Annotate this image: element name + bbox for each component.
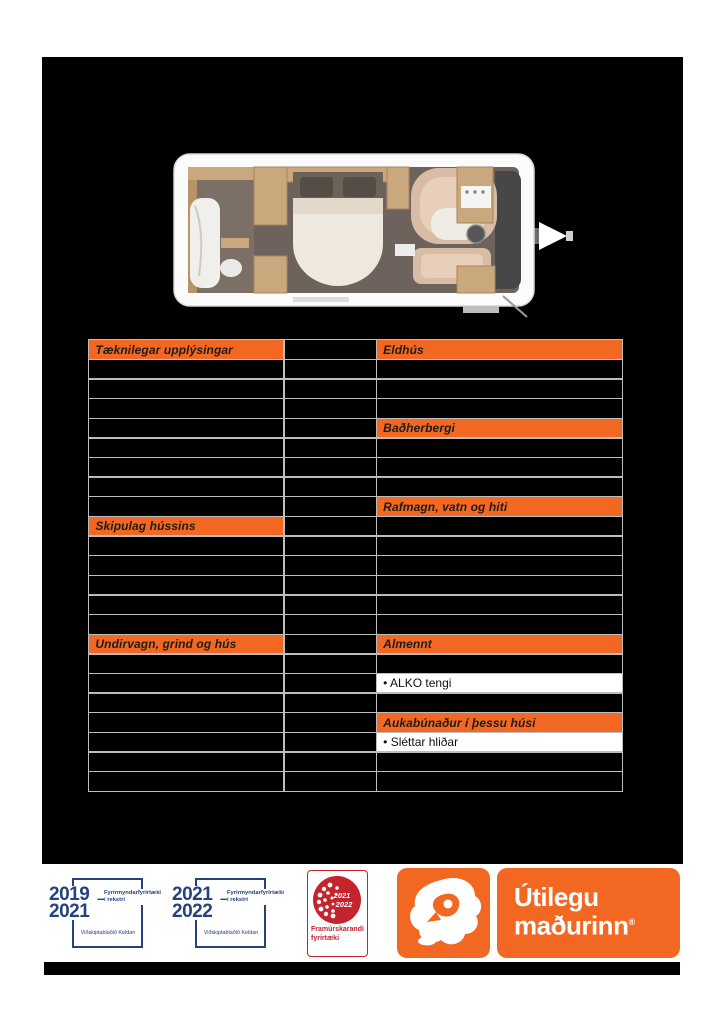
empty-cell-left: [89, 380, 283, 398]
empty-cell-mid: [285, 576, 376, 594]
empty-cell-left: [89, 615, 283, 633]
award-year-bottom: 2022: [172, 903, 212, 920]
empty-cell-left: [89, 497, 283, 515]
empty-cell-right: [377, 380, 621, 398]
feature-item-cell: • Sléttar hliðar: [377, 733, 621, 751]
empty-cell-left: [89, 478, 283, 496]
svg-text:2021: 2021: [333, 891, 351, 900]
empty-cell-mid: [285, 537, 376, 555]
framurskarandi-caption: Framúrskarandi fyrirtæki: [311, 926, 367, 943]
empty-cell-right: [377, 537, 621, 555]
empty-cell-right: [377, 596, 621, 614]
section-header-cell: Tæknilegar upplýsingar: [89, 340, 283, 358]
empty-cell-mid: [285, 478, 376, 496]
brand-mascot-logo: [397, 868, 490, 958]
award-year-bottom: 2021: [49, 903, 89, 920]
empty-cell-right: [377, 478, 621, 496]
outdoorsman-face-icon: [397, 868, 490, 958]
section-header-cell: Eldhús: [377, 340, 621, 358]
empty-cell-mid: [285, 497, 376, 515]
section-header-cell: Aukabúnaður í þessu húsi: [377, 713, 621, 731]
empty-cell-left: [89, 556, 283, 574]
section-header-cell: Skipulag hússins: [89, 517, 283, 535]
empty-cell-right: [377, 517, 621, 535]
empty-cell-mid: [285, 635, 376, 653]
empty-cell-left: [89, 360, 283, 378]
spec-table: Tæknilegar upplýsingarEldhúsBaðherbergiR…: [88, 339, 623, 792]
brand-wordmark-logo: Útilegu maðurinn®: [497, 868, 680, 958]
empty-cell-left: [89, 674, 283, 692]
empty-cell-right: [377, 615, 621, 633]
section-header-cell: Undirvagn, grind og hús: [89, 635, 283, 653]
empty-cell-left: [89, 439, 283, 457]
empty-cell-mid: [285, 439, 376, 457]
svg-text:2022: 2022: [335, 900, 354, 909]
empty-cell-mid: [285, 517, 376, 535]
framurskarandi-circle-icon: 2021 2022: [313, 876, 361, 924]
empty-cell-right: [377, 772, 621, 790]
empty-cell-mid: [285, 458, 376, 476]
empty-cell-mid: [285, 596, 376, 614]
empty-cell-left: [89, 596, 283, 614]
empty-cell-mid: [285, 556, 376, 574]
empty-cell-left: [89, 655, 283, 673]
empty-cell-right: [377, 694, 621, 712]
empty-cell-left: [89, 537, 283, 555]
empty-cell-mid: [285, 419, 376, 437]
award-subtitle: Viðskiptablaðið Keldan: [78, 929, 138, 937]
empty-cell-right: [377, 556, 621, 574]
empty-cell-right: [377, 399, 621, 417]
section-header-cell: Rafmagn, vatn og hiti: [377, 497, 621, 515]
brand-line1: Útilegu: [514, 885, 680, 910]
empty-cell-right: [377, 753, 621, 771]
empty-cell-left: [89, 576, 283, 594]
empty-cell-mid: [285, 380, 376, 398]
empty-cell-mid: [285, 399, 376, 417]
empty-cell-left: [89, 753, 283, 771]
empty-cell-mid: [285, 694, 376, 712]
empty-cell-mid: [285, 733, 376, 751]
award-years: 2019 2021: [48, 886, 90, 920]
brand-line2: maðurinn®: [514, 910, 680, 939]
empty-cell-left: [89, 713, 283, 731]
empty-cell-right: [377, 655, 621, 673]
registered-mark: ®: [628, 917, 634, 927]
empty-cell-mid: [285, 753, 376, 771]
bottom-black-bar: [44, 962, 680, 975]
empty-cell-mid: [285, 615, 376, 633]
empty-cell-mid: [285, 360, 376, 378]
empty-cell-left: [89, 694, 283, 712]
section-header-cell: Almennt: [377, 635, 621, 653]
caravan-floorplan-image: [173, 146, 577, 318]
empty-cell-left: [89, 772, 283, 790]
award-subtitle: Viðskiptablaðið Keldan: [201, 929, 261, 937]
empty-cell-left: [89, 419, 283, 437]
empty-cell-mid: [285, 772, 376, 790]
empty-cell-mid: [285, 713, 376, 731]
empty-cell-right: [377, 576, 621, 594]
empty-cell-mid: [285, 655, 376, 673]
empty-cell-right: [377, 458, 621, 476]
section-header-cell: Baðherbergi: [377, 419, 621, 437]
empty-cell-mid: [285, 340, 376, 358]
award-title: Fyrirmyndarfyrirtæki í rekstri: [227, 889, 273, 905]
award-title: Fyrirmyndarfyrirtæki í rekstri: [104, 889, 150, 905]
empty-cell-mid: [285, 674, 376, 692]
empty-cell-right: [377, 360, 621, 378]
empty-cell-right: [377, 439, 621, 457]
empty-cell-left: [89, 458, 283, 476]
empty-cell-left: [89, 399, 283, 417]
award-years: 2021 2022: [171, 886, 213, 920]
empty-cell-left: [89, 733, 283, 751]
feature-item-cell: • ALKO tengi: [377, 674, 621, 692]
